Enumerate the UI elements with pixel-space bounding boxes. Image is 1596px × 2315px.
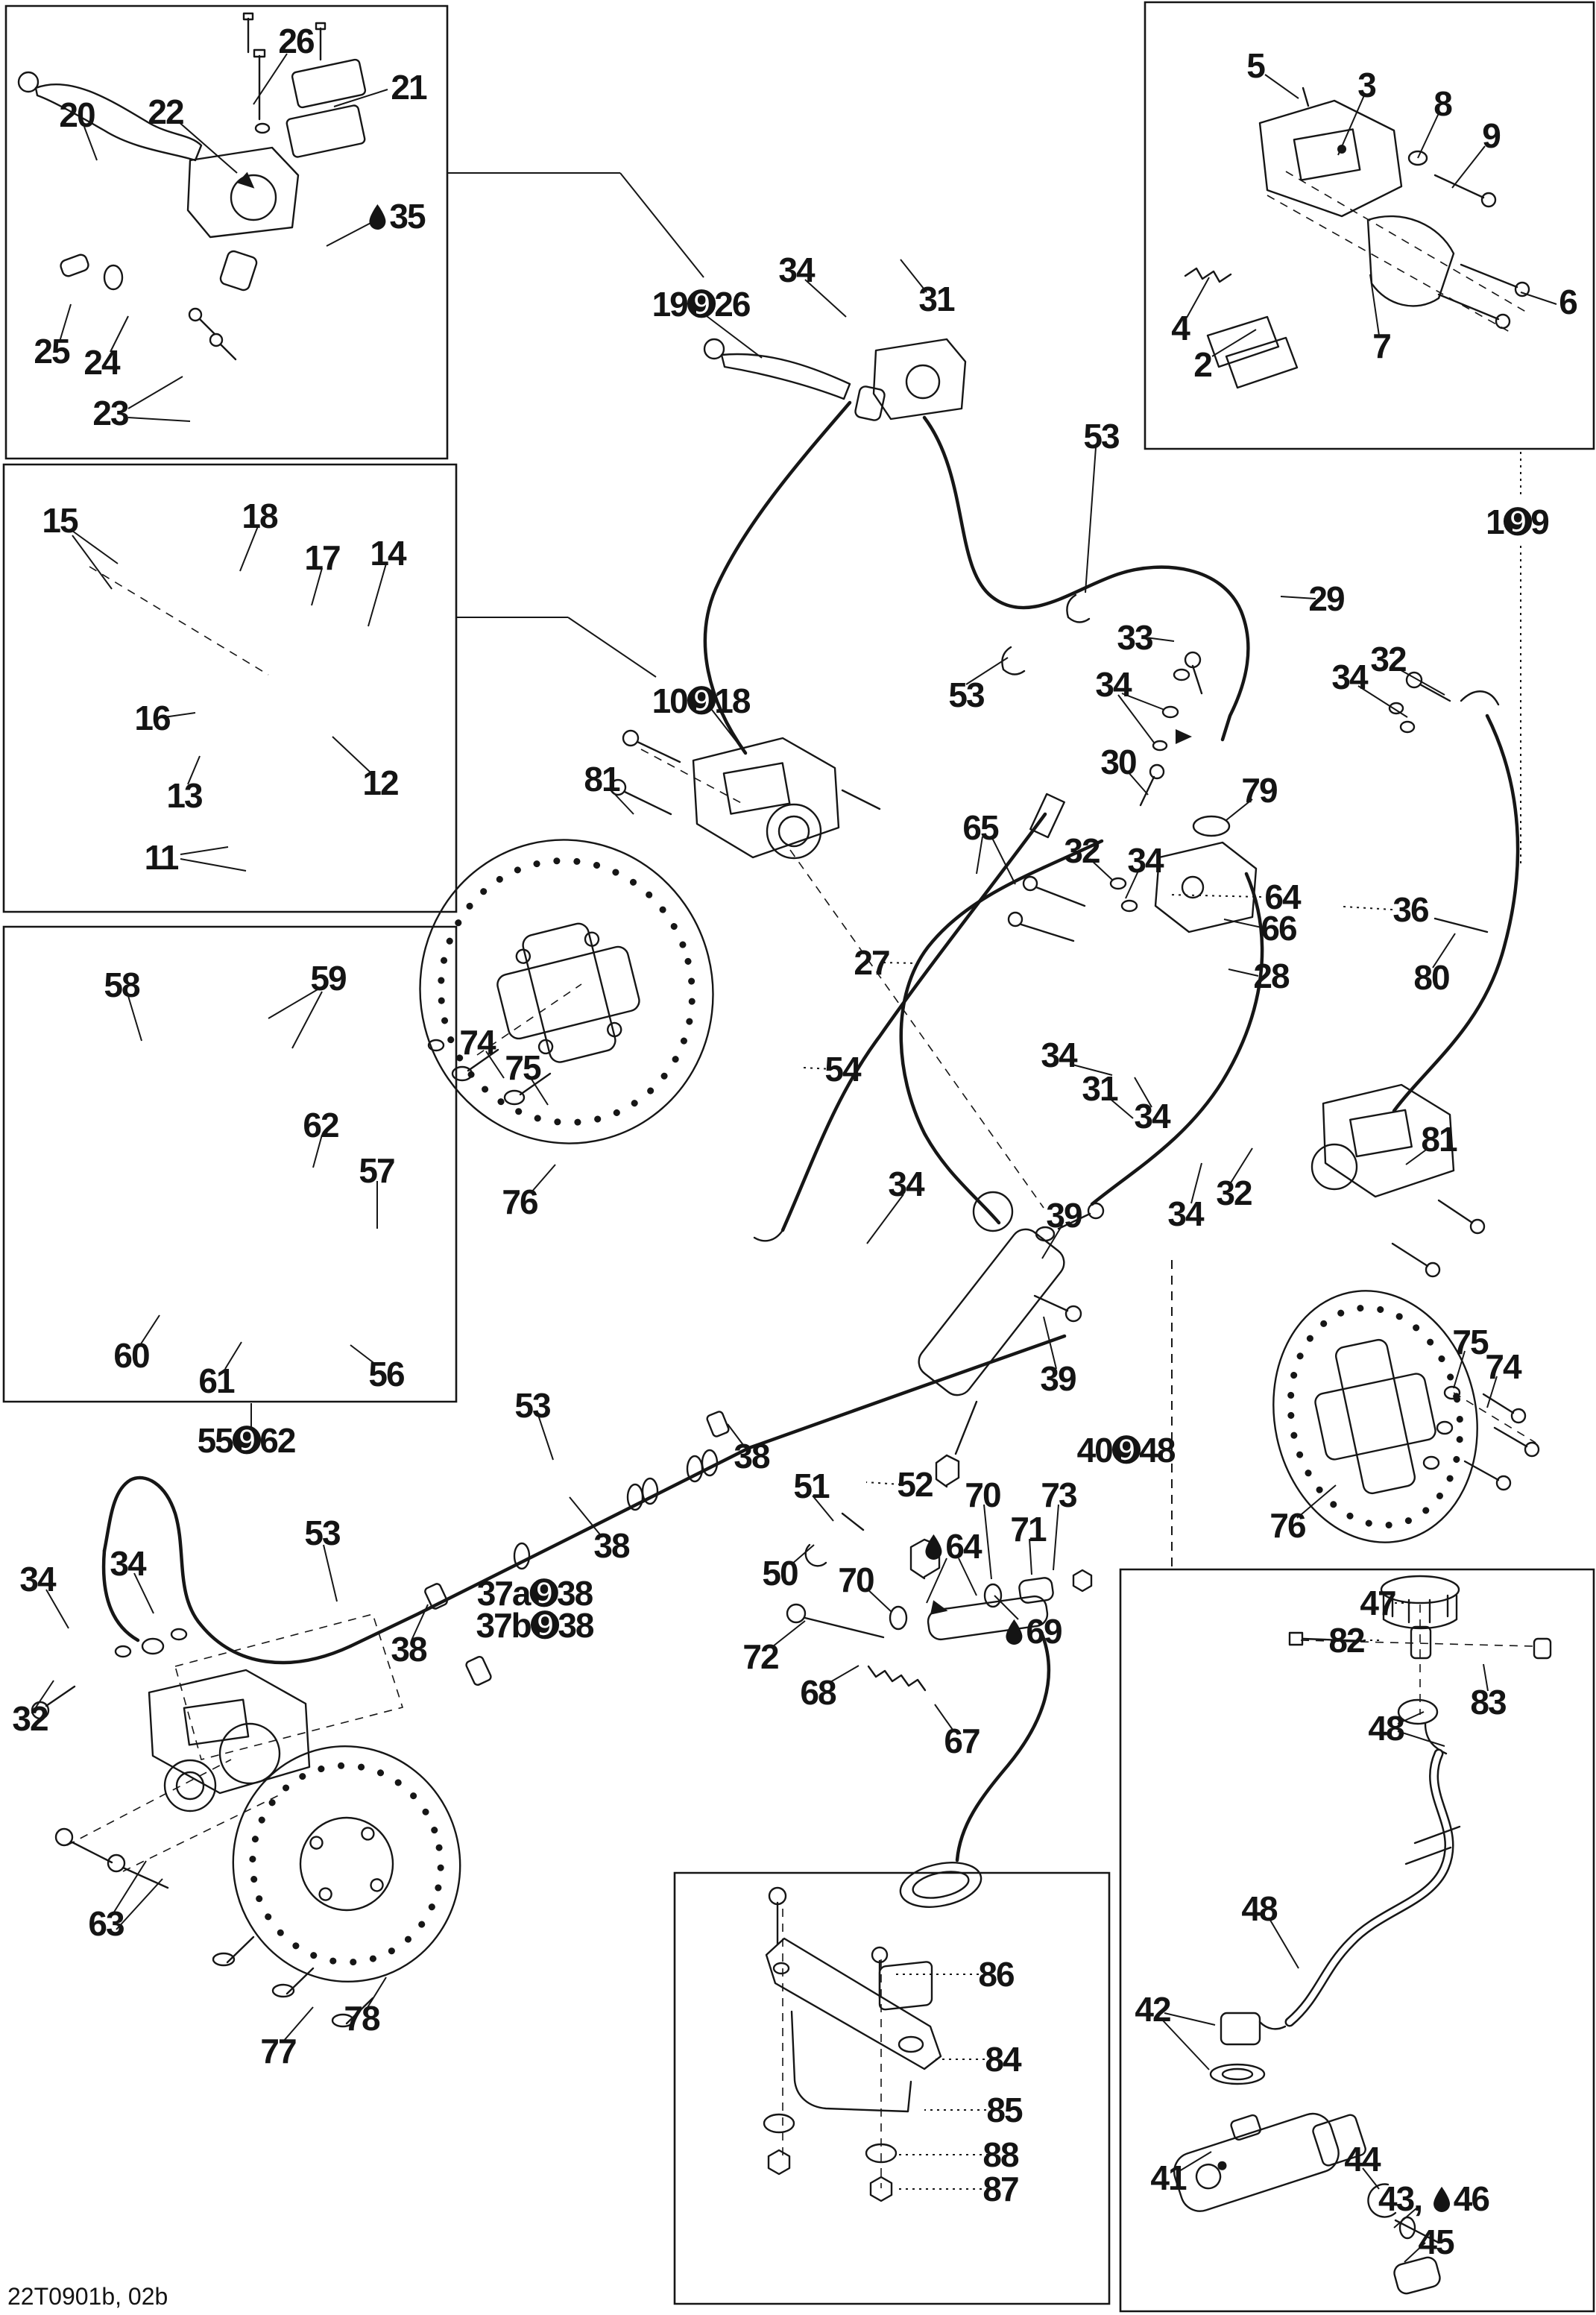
part-label-27: 27 (854, 945, 889, 980)
elbow-48 (1425, 1724, 1446, 1754)
part-label-42: 42 (1135, 1992, 1170, 2026)
leader-line (368, 564, 386, 626)
part-label-32: 32 (1370, 642, 1405, 676)
inset-box (675, 1873, 1109, 2304)
part-label-47: 47 (1360, 1586, 1395, 1620)
leader-line (984, 1505, 991, 1579)
part-label-63: 63 (88, 1906, 123, 1941)
part-label-80: 80 (1413, 960, 1448, 995)
nut-87 (871, 2177, 892, 2201)
part-label-56: 56 (368, 1357, 403, 1391)
part-label-39: 39 (1040, 1361, 1075, 1396)
leader-line (620, 173, 704, 277)
part-label-59: 59 (310, 961, 345, 995)
part-label-86: 86 (978, 1957, 1013, 1991)
part-label-38: 38 (734, 1439, 769, 1473)
part-label-4346: 43, 46 (1378, 2182, 1489, 2216)
leader-line (1169, 895, 1261, 897)
pedal-pad (896, 1856, 985, 1914)
caliper-pin (1482, 193, 1495, 207)
part-label-34: 34 (1134, 1099, 1169, 1133)
part-label-54: 54 (824, 1052, 859, 1086)
part-label-83: 83 (1470, 1685, 1505, 1719)
caliper-bolt-63 (108, 1855, 124, 1871)
leader-line (253, 54, 287, 104)
cover-screw (316, 23, 325, 29)
banjo-bolt-39 (1066, 1306, 1081, 1321)
part-label-34: 34 (1127, 843, 1162, 878)
part-label-62: 62 (303, 1108, 338, 1142)
clamp-38 (706, 1411, 730, 1437)
part-label-21: 21 (391, 70, 426, 104)
banjo-bolt-39 (1088, 1203, 1103, 1218)
leader-line (177, 121, 237, 173)
brake-pad (1226, 338, 1297, 388)
part-label-85: 85 (986, 2093, 1021, 2127)
fluid-drop-icon (368, 204, 387, 230)
part-label-12: 12 (362, 766, 397, 800)
part-label-19: 1➒9 (1486, 505, 1548, 539)
part-label-48: 48 (1368, 1711, 1403, 1745)
leader-line (1085, 447, 1096, 593)
gasket-42 (1223, 2069, 1252, 2079)
part-label-75: 75 (505, 1051, 540, 1085)
part-label-2: 2 (1193, 347, 1211, 382)
part-label-38: 38 (593, 1528, 628, 1563)
fluid-drop-icon (1432, 2186, 1451, 2213)
leader-line (180, 859, 246, 871)
elbow-fitting (1461, 691, 1498, 705)
part-label-71: 71 (1010, 1512, 1045, 1546)
clip-50 (806, 1545, 826, 1566)
part-label-11: 11 (145, 840, 178, 875)
part-label-61: 61 (198, 1364, 233, 1398)
caliper-body (1260, 101, 1401, 216)
rear-caliper-left (56, 1670, 309, 1888)
part-label-84: 84 (985, 2042, 1020, 2076)
leader-line (1053, 1505, 1059, 1570)
diagram-artwork (0, 0, 1596, 2315)
leader-line (866, 1482, 900, 1484)
part-label-33: 33 (1117, 620, 1152, 655)
leader-line (1452, 146, 1485, 188)
clamp-38 (465, 1656, 492, 1686)
part-label-1926: 19➒26 (652, 287, 750, 321)
caliper-bracket (1368, 216, 1454, 306)
part-label-34: 34 (1167, 1197, 1202, 1231)
part-label-65: 65 (962, 810, 997, 845)
leader-line (292, 992, 322, 1048)
fluid-drop-icon (1004, 1619, 1023, 1645)
leader-line (1164, 2013, 1215, 2025)
nut-73 (1073, 1570, 1091, 1591)
washer (1122, 901, 1137, 911)
leader-line (1265, 75, 1299, 98)
leader-line (128, 418, 190, 421)
lever-link (219, 250, 258, 292)
part-label-57: 57 (359, 1153, 394, 1188)
part-label-25: 25 (34, 334, 69, 368)
part-label-88: 88 (982, 2138, 1018, 2172)
washer-70 (890, 1607, 906, 1629)
caliper-bolt-81 (623, 731, 638, 746)
front-brake-disc (388, 809, 745, 1175)
part-label-70: 70 (838, 1563, 873, 1597)
part-label-48: 48 (1241, 1892, 1276, 1926)
part-label-5562: 55➒62 (198, 1423, 295, 1458)
brake-lever (722, 354, 850, 399)
part-label-28: 28 (1253, 959, 1288, 993)
bleeder-screw (1303, 88, 1308, 106)
part-label-39: 39 (1046, 1198, 1081, 1232)
washer (1163, 707, 1178, 717)
part-label-53: 53 (1083, 419, 1118, 453)
rear-master-cylinder (913, 1192, 1103, 1487)
cover-screw (244, 13, 253, 19)
washer (1174, 670, 1189, 680)
leader-line (1187, 277, 1209, 318)
bolt-30 (1150, 765, 1164, 778)
arrowhead-icon (1176, 729, 1192, 744)
part-label-31: 31 (918, 282, 953, 316)
part-label-53: 53 (948, 678, 983, 712)
part-label-74: 74 (459, 1025, 494, 1059)
part-label-30: 30 (1100, 745, 1135, 779)
part-label-36: 36 (1392, 892, 1428, 927)
part-label-3: 3 (1357, 68, 1375, 102)
leader-line (1343, 907, 1392, 910)
hose-clip (1002, 647, 1024, 675)
part-label-20: 20 (59, 98, 94, 132)
banjo-eye (142, 1639, 163, 1654)
part-label-34: 34 (778, 253, 813, 287)
part-label-26: 26 (278, 24, 313, 58)
part-label-16: 16 (134, 701, 169, 735)
rear-brake-disc-left (215, 1728, 479, 2000)
part-label-77: 77 (260, 2034, 295, 2068)
hose-27 (901, 841, 1102, 1223)
elbow-42 (1221, 2013, 1260, 2044)
part-label-15: 15 (42, 503, 77, 538)
front-lever-assembly-inset (19, 13, 366, 359)
part-label-32: 32 (1216, 1176, 1251, 1210)
handlebar-master-cylinder (704, 339, 965, 421)
bracket-face (880, 1962, 932, 2010)
leader-line (180, 847, 228, 854)
part-label-68: 68 (800, 1675, 835, 1710)
part-label-69: 69 (1002, 1614, 1061, 1648)
drawing-code: 22T0901b, 02b (7, 2283, 168, 2311)
leader-line (1521, 292, 1556, 304)
part-label-6: 6 (1559, 285, 1577, 319)
parts-diagram-page: 26212022352524235389427619➒263431531➒929… (0, 0, 1596, 2315)
part-label-8: 8 (1433, 86, 1451, 121)
part-label-76: 76 (502, 1185, 537, 1219)
washer (764, 2114, 794, 2132)
part-label-14: 14 (370, 536, 405, 570)
part-label-53: 53 (514, 1388, 549, 1423)
part-label-18: 18 (242, 499, 277, 533)
bushing-71 (1018, 1577, 1054, 1604)
front-caliper-inset (1185, 88, 1529, 388)
master-cylinder-bore (906, 365, 939, 398)
leader-lines (36, 54, 1556, 2262)
part-label-4: 4 (1171, 311, 1189, 345)
fluid-drop-icon (924, 1534, 943, 1560)
part-label-7: 7 (1372, 329, 1390, 363)
bolt-65 (1023, 877, 1037, 890)
part-label-75: 75 (1452, 1325, 1487, 1359)
part-label-44: 44 (1344, 2142, 1379, 2176)
part-label-82: 82 (1328, 1623, 1363, 1657)
washer (116, 1646, 130, 1657)
leader-line (1212, 330, 1256, 356)
part-label-34: 34 (1095, 667, 1130, 702)
bracket-bolt (769, 1888, 786, 1904)
part-label-34: 34 (1041, 1038, 1076, 1072)
spring-68 (868, 1666, 925, 1690)
bolt-82 (1290, 1633, 1302, 1645)
caliper-window (1294, 129, 1360, 180)
part-label-52: 52 (897, 1467, 932, 1502)
part-label-64: 64 (921, 1529, 980, 1563)
clamp-bolt (210, 334, 222, 346)
part-label-41: 41 (1150, 2161, 1185, 2195)
nut (769, 2150, 789, 2174)
part-label-53: 53 (304, 1516, 339, 1550)
washer-70 (985, 1584, 1001, 1607)
washer (1401, 722, 1414, 732)
bolt-72 (787, 1604, 805, 1622)
part-label-81: 81 (1421, 1122, 1456, 1156)
part-label-66: 66 (1261, 911, 1296, 945)
master-cylinder-body (874, 339, 965, 419)
bushing (59, 253, 89, 278)
part-label-32: 32 (12, 1701, 47, 1736)
part-label-73: 73 (1041, 1478, 1076, 1512)
part-label-38: 38 (391, 1632, 426, 1666)
leader-line (72, 535, 112, 589)
clamp-79 (1193, 816, 1229, 836)
part-label-87: 87 (982, 2172, 1018, 2206)
part-label-74: 74 (1485, 1349, 1520, 1384)
leader-line (927, 1558, 947, 1603)
part-label-76: 76 (1269, 1508, 1305, 1543)
caliper-bolt-81 (1471, 1220, 1484, 1233)
pin-80 (1435, 919, 1487, 932)
part-label-23: 23 (92, 396, 127, 430)
leader-line (128, 377, 183, 409)
bolt-65 (1009, 913, 1022, 926)
part-label-34: 34 (1331, 660, 1366, 694)
o-ring (104, 265, 122, 289)
part-label-17: 17 (304, 541, 339, 575)
leader-line (334, 89, 388, 107)
washer (1437, 1422, 1452, 1434)
part-label-45: 45 (1418, 2225, 1453, 2259)
part-label-32: 32 (1064, 834, 1099, 868)
part-label-72: 72 (742, 1640, 778, 1674)
part-label-13: 13 (166, 778, 201, 813)
reservoir-cover (291, 59, 366, 108)
part-label-31: 31 (1082, 1071, 1117, 1106)
rear-caliper-right (1312, 1085, 1484, 1276)
washer (1153, 741, 1167, 750)
pivot-nut (256, 124, 269, 133)
hose-clip (1067, 595, 1089, 623)
reservoir-diaphragm (286, 104, 366, 157)
part-label-22: 22 (148, 95, 183, 129)
washer (1445, 1387, 1460, 1399)
master-cylinder-body (188, 148, 298, 237)
part-label-4048: 40➒48 (1077, 1433, 1175, 1467)
leader-line (324, 1545, 337, 1601)
part-label-67: 67 (944, 1724, 979, 1758)
part-label-24: 24 (83, 345, 119, 379)
part-label-29: 29 (1308, 582, 1343, 616)
washer (1390, 703, 1403, 714)
pin-51 (842, 1514, 863, 1530)
part-label-58: 58 (104, 968, 139, 1002)
leader-line (1398, 1731, 1445, 1746)
part-label-1018: 10➒18 (652, 684, 750, 718)
part-label-37b38: 37b➒38 (476, 1608, 593, 1642)
master-cylinder-bore (231, 175, 276, 220)
part-label-50: 50 (762, 1556, 797, 1590)
bushing-45 (1392, 2255, 1442, 2296)
part-label-35: 35 (365, 199, 424, 233)
leader-line (568, 617, 656, 677)
part-label-34: 34 (110, 1546, 145, 1581)
disc-bolts-74-75-right (1424, 1387, 1539, 1490)
part-label-79: 79 (1241, 773, 1276, 807)
washer (1424, 1457, 1439, 1469)
reservoir-neck (1411, 1627, 1431, 1658)
part-label-81: 81 (584, 762, 619, 796)
part-label-51: 51 (793, 1469, 828, 1503)
part-label-34: 34 (19, 1562, 54, 1596)
upper-right-banjo (1390, 673, 1498, 732)
caliper-bolt-63 (56, 1829, 72, 1845)
part-label-5: 5 (1246, 48, 1264, 83)
leader-line (72, 531, 118, 564)
part-label-78: 78 (344, 2001, 379, 2035)
caliper-bolt-81 (1426, 1263, 1439, 1276)
fitting-83 (1534, 1639, 1551, 1658)
brake-pad (1208, 317, 1278, 367)
washer (1111, 878, 1126, 889)
washer (171, 1629, 186, 1640)
part-label-34: 34 (888, 1167, 923, 1201)
part-label-9: 9 (1482, 119, 1500, 153)
part-label-70: 70 (965, 1478, 1000, 1512)
part-label-60: 60 (113, 1338, 148, 1373)
mount-bolt (1496, 315, 1510, 328)
clamp-bolt (189, 309, 201, 321)
